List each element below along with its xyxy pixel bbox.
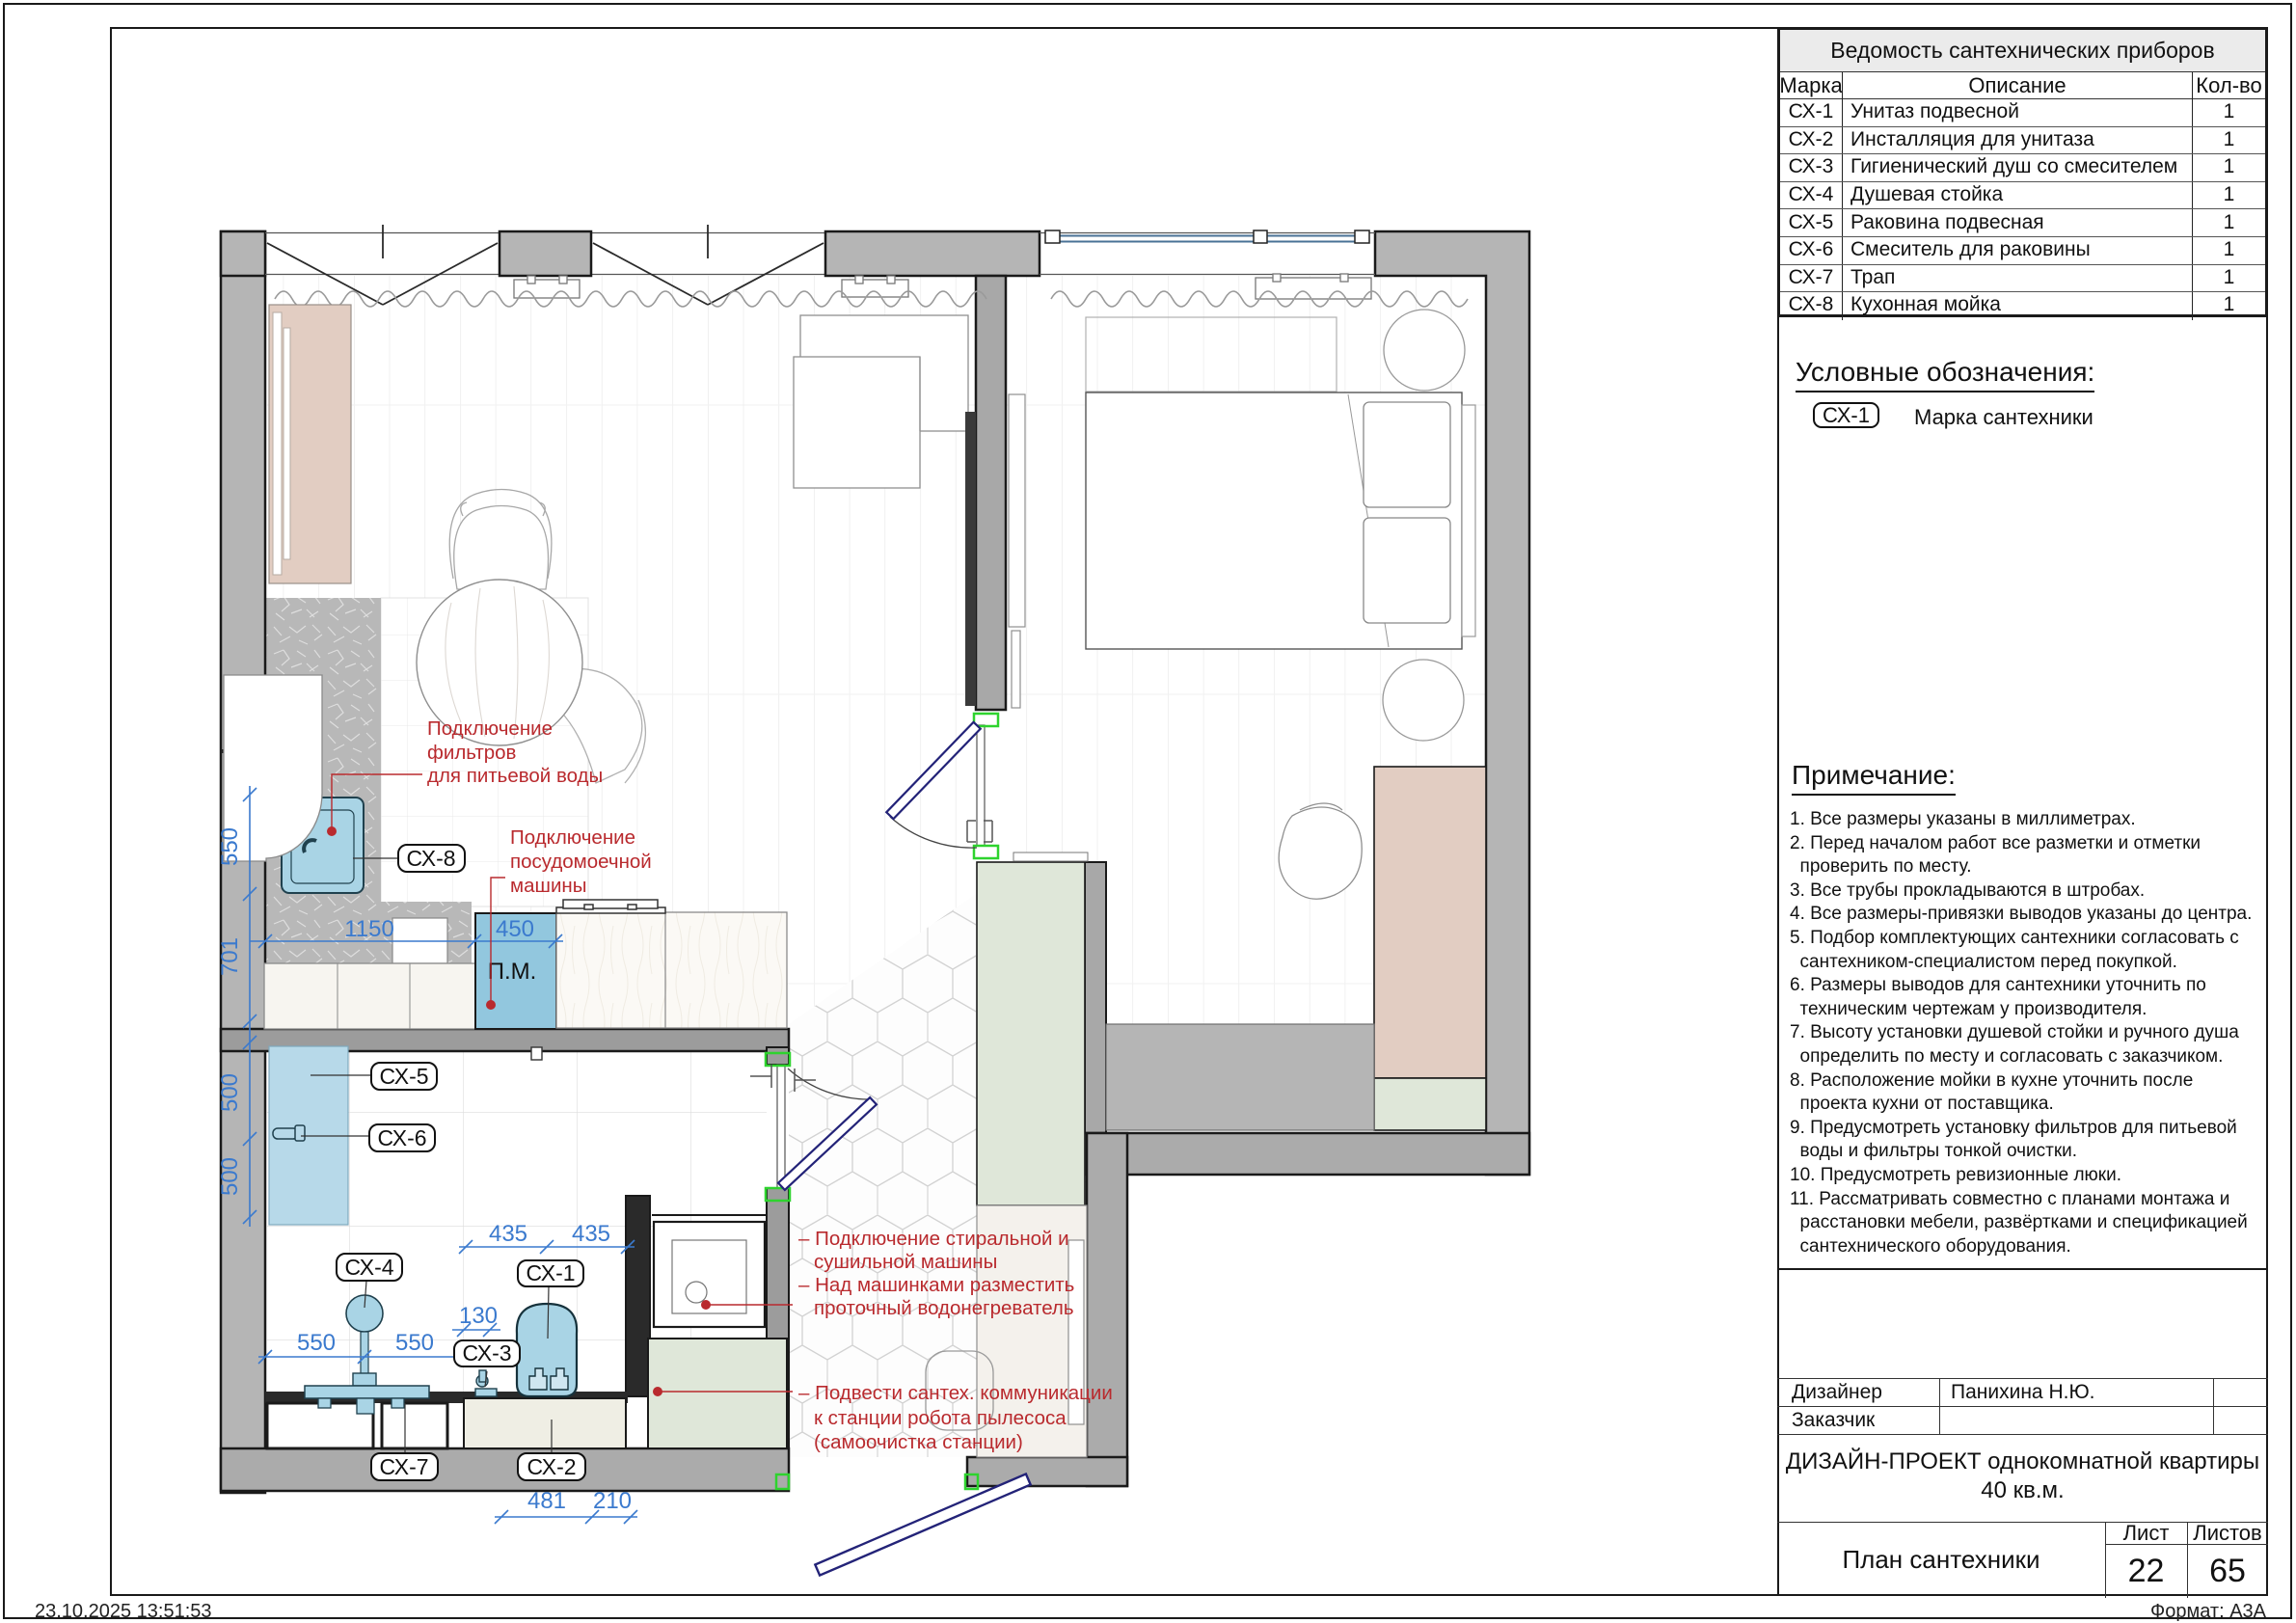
svg-text:– Подключение стиральной и: – Подключение стиральной и [798,1228,1069,1250]
svg-text:СХ-4: СХ-4 [344,1255,393,1280]
svg-text:фильтров: фильтров [427,742,516,764]
svg-text:550: 550 [297,1330,336,1356]
svg-text:для питьевой воды: для питьевой воды [427,765,603,787]
svg-text:– Над машинками разместить: – Над машинками разместить [798,1274,1074,1296]
svg-text:701: 701 [217,937,243,976]
svg-text:435: 435 [489,1221,527,1247]
svg-text:проточный водонегреватель: проточный водонегреватель [814,1297,1074,1319]
svg-text:550: 550 [395,1330,434,1356]
svg-text:130: 130 [459,1303,498,1329]
svg-text:435: 435 [572,1221,610,1247]
svg-text:Подключение: Подключение [510,826,635,849]
svg-text:посудомоечной: посудомоечной [510,851,652,873]
svg-text:СХ-5: СХ-5 [379,1064,428,1089]
svg-text:сушильной машины: сушильной машины [814,1251,997,1273]
svg-text:СХ-7: СХ-7 [379,1454,428,1479]
svg-text:1150: 1150 [344,916,394,942]
svg-text:481: 481 [527,1488,566,1514]
svg-text:210: 210 [593,1488,632,1514]
svg-text:СХ-2: СХ-2 [527,1454,576,1479]
svg-text:П.М.: П.М. [488,959,537,985]
svg-text:500: 500 [217,1157,243,1196]
svg-text:СХ-6: СХ-6 [377,1125,426,1150]
svg-text:СХ-8: СХ-8 [406,846,455,871]
svg-text:– Подвести сантех. коммуникаци: – Подвести сантех. коммуникации [798,1382,1113,1404]
svg-text:500: 500 [217,1073,243,1112]
svg-text:450: 450 [496,916,534,942]
svg-text:СХ-1: СХ-1 [526,1260,575,1285]
svg-text:(самоочистка станции): (самоочистка станции) [814,1431,1023,1453]
svg-text:СХ-3: СХ-3 [462,1340,511,1366]
svg-text:Подключение: Подключение [427,717,553,740]
svg-text:машины: машины [510,875,586,897]
svg-text:к станции робота пылесоса: к станции робота пылесоса [814,1407,1067,1429]
svg-text:550: 550 [217,827,243,866]
